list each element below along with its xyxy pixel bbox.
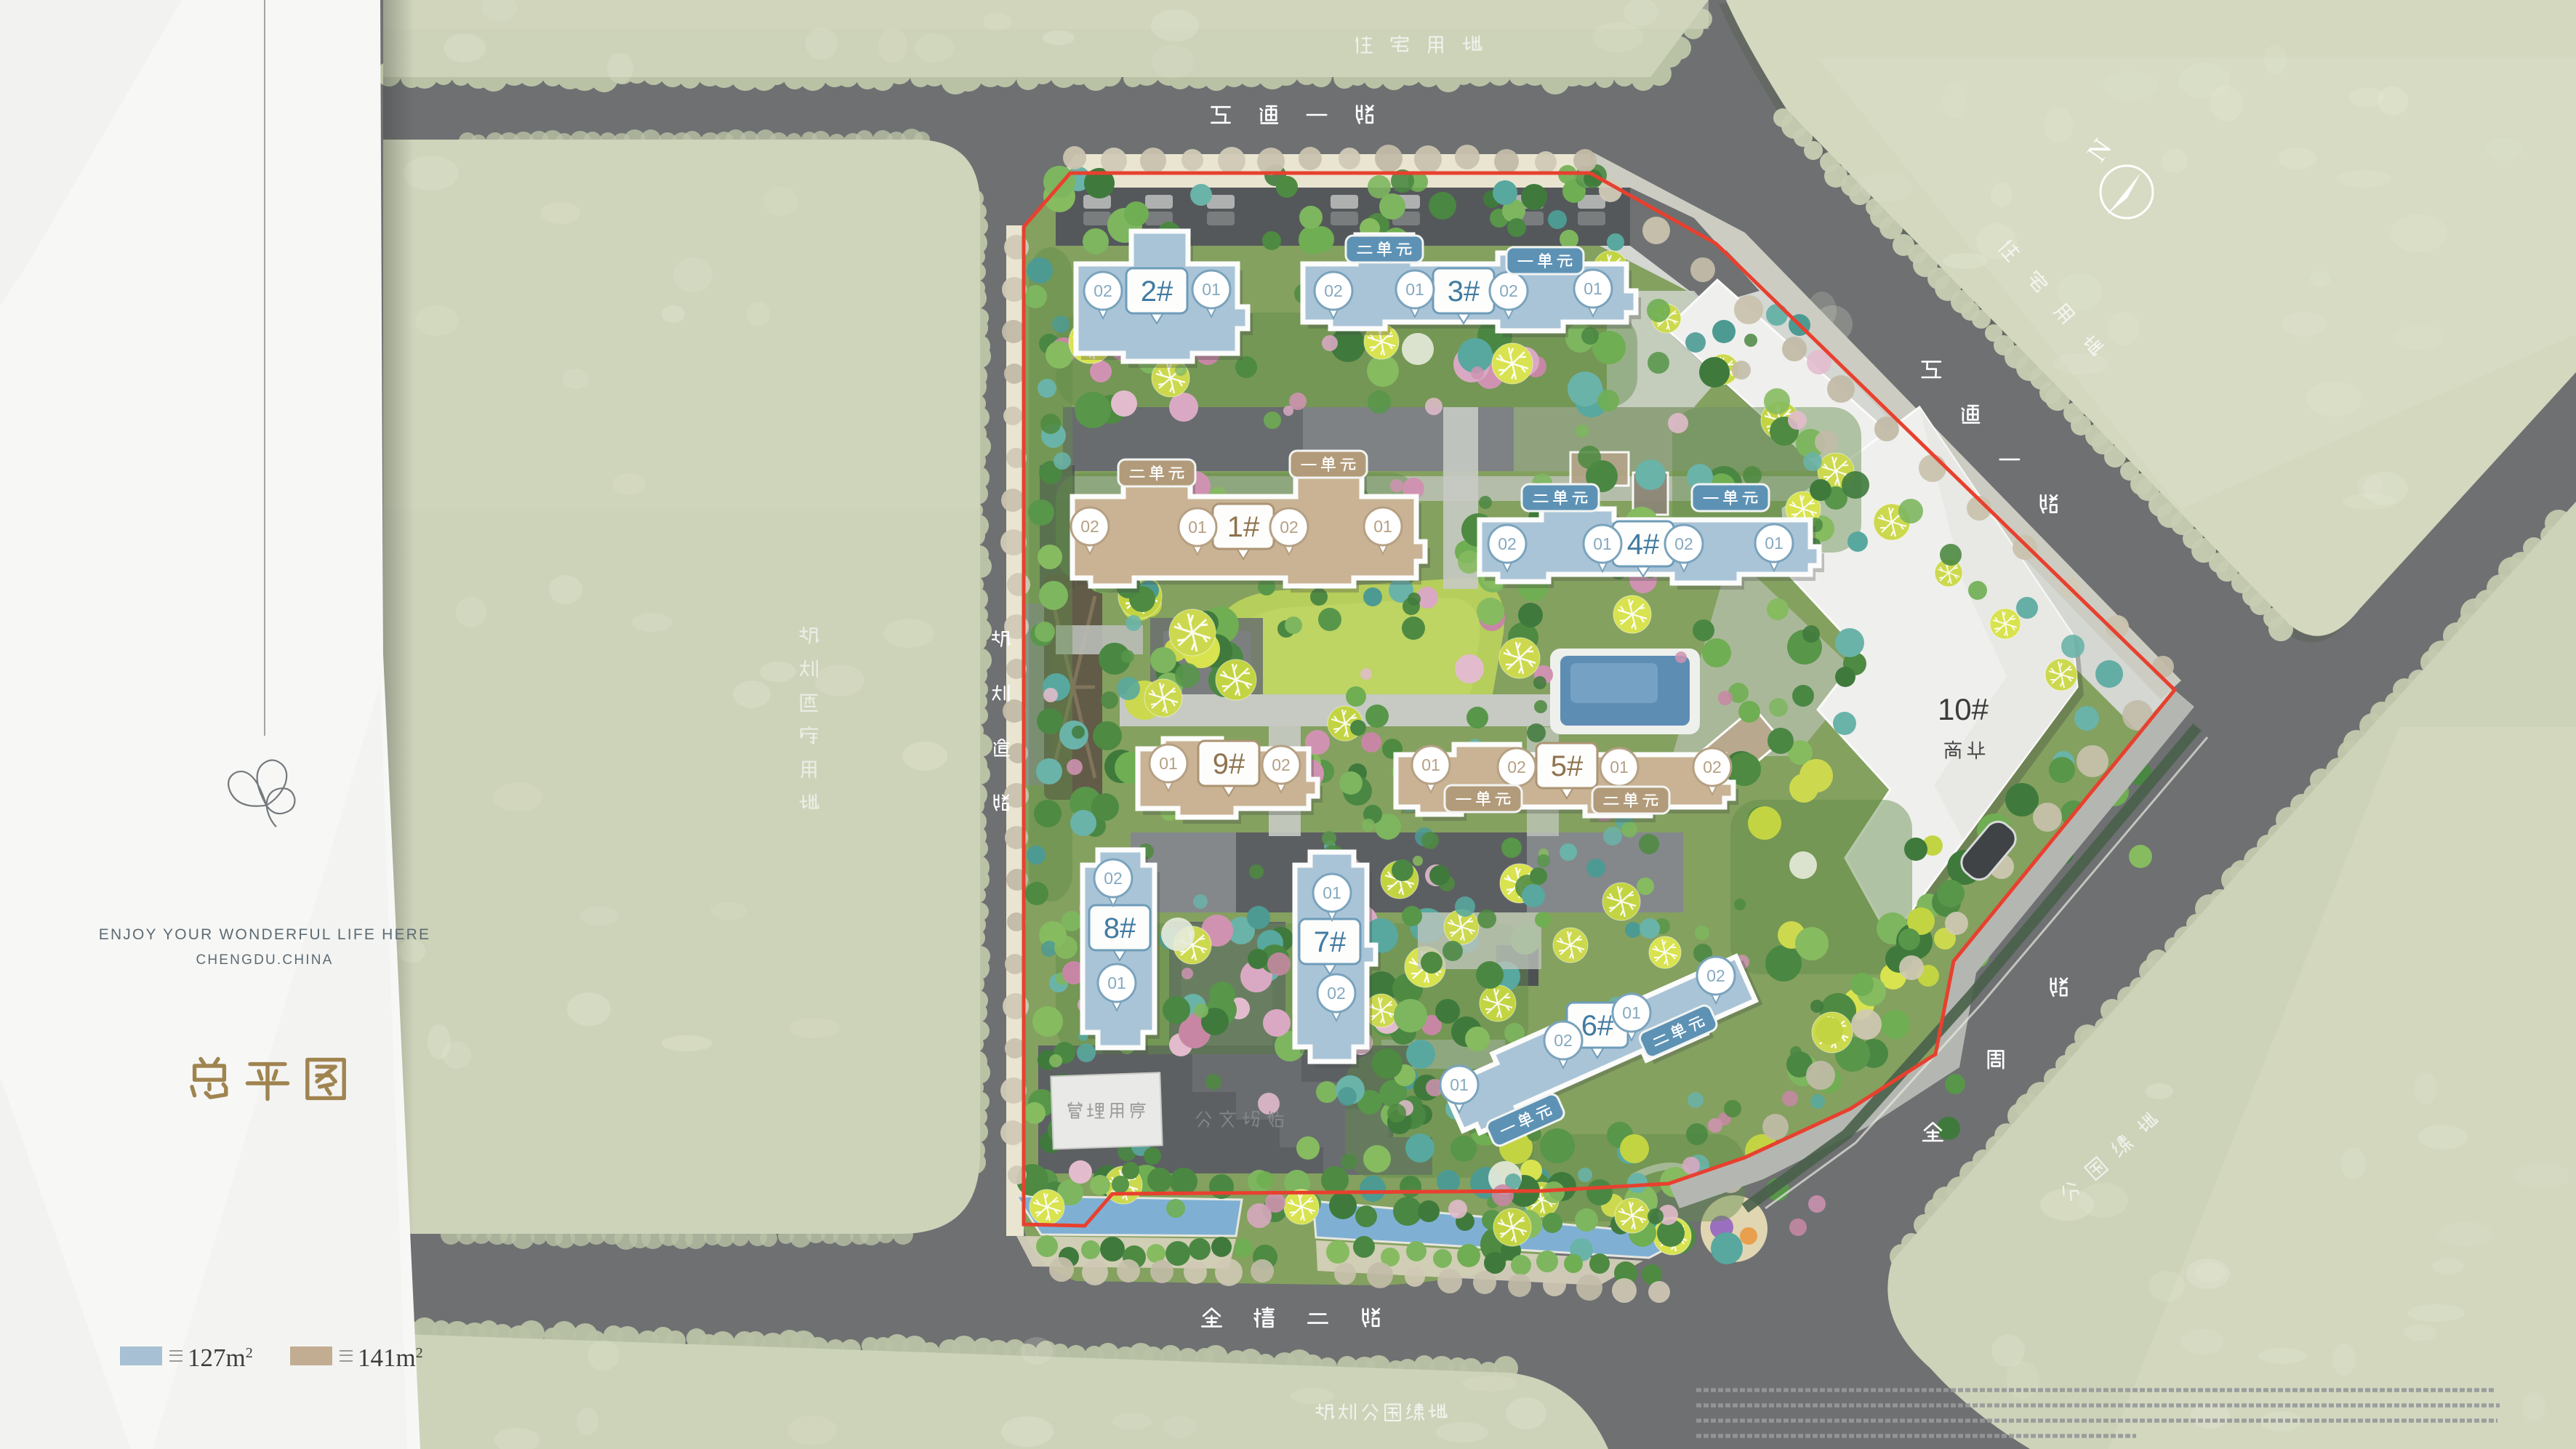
svg-text:CHENGDU.CHINA: CHENGDU.CHINA <box>196 952 333 968</box>
svg-text:01: 01 <box>1450 1075 1469 1094</box>
svg-text:2#: 2# <box>1141 276 1173 308</box>
svg-text:7#: 7# <box>1314 926 1347 958</box>
svg-text:4#: 4# <box>1627 529 1660 561</box>
svg-text:02: 02 <box>1080 517 1099 536</box>
svg-text:02: 02 <box>1703 758 1722 776</box>
svg-text:02: 02 <box>1554 1031 1573 1050</box>
svg-text:01: 01 <box>1188 518 1207 537</box>
svg-text:01: 01 <box>1622 1003 1641 1022</box>
svg-text:02: 02 <box>1280 518 1299 537</box>
svg-text:01: 01 <box>1610 758 1629 776</box>
svg-text:01: 01 <box>1107 974 1126 992</box>
svg-text:9#: 9# <box>1213 748 1245 780</box>
svg-text:02: 02 <box>1499 281 1518 300</box>
svg-text:01: 01 <box>1159 754 1178 773</box>
svg-text:02: 02 <box>1324 281 1343 300</box>
svg-text:01: 01 <box>1765 534 1783 553</box>
svg-text:01: 01 <box>1421 755 1440 774</box>
svg-text:02: 02 <box>1507 758 1526 776</box>
svg-text:5#: 5# <box>1551 750 1584 782</box>
svg-text:10#: 10# <box>1938 692 1989 726</box>
svg-text:01: 01 <box>1373 517 1392 536</box>
svg-text:141m2: 141m2 <box>358 1344 423 1372</box>
svg-text:6#: 6# <box>1581 1010 1614 1042</box>
svg-text:01: 01 <box>1202 280 1221 299</box>
svg-text:01: 01 <box>1593 534 1612 553</box>
svg-text:02: 02 <box>1327 984 1346 1003</box>
svg-text:ENJOY YOUR WONDERFUL LIFE HERE: ENJOY YOUR WONDERFUL LIFE HERE <box>99 926 431 943</box>
svg-text:3#: 3# <box>1448 276 1480 308</box>
svg-text:127m2: 127m2 <box>188 1344 253 1372</box>
svg-text:01: 01 <box>1584 279 1602 298</box>
svg-text:01: 01 <box>1405 280 1424 299</box>
svg-text:02: 02 <box>1498 534 1517 553</box>
svg-text:02: 02 <box>1272 755 1291 774</box>
svg-text:02: 02 <box>1104 869 1123 888</box>
svg-text:02: 02 <box>1094 281 1112 300</box>
svg-text:02: 02 <box>1706 966 1725 985</box>
svg-text:02: 02 <box>1674 534 1693 553</box>
svg-text:01: 01 <box>1323 883 1341 902</box>
svg-text:8#: 8# <box>1104 912 1136 944</box>
svg-text:1#: 1# <box>1227 511 1260 543</box>
